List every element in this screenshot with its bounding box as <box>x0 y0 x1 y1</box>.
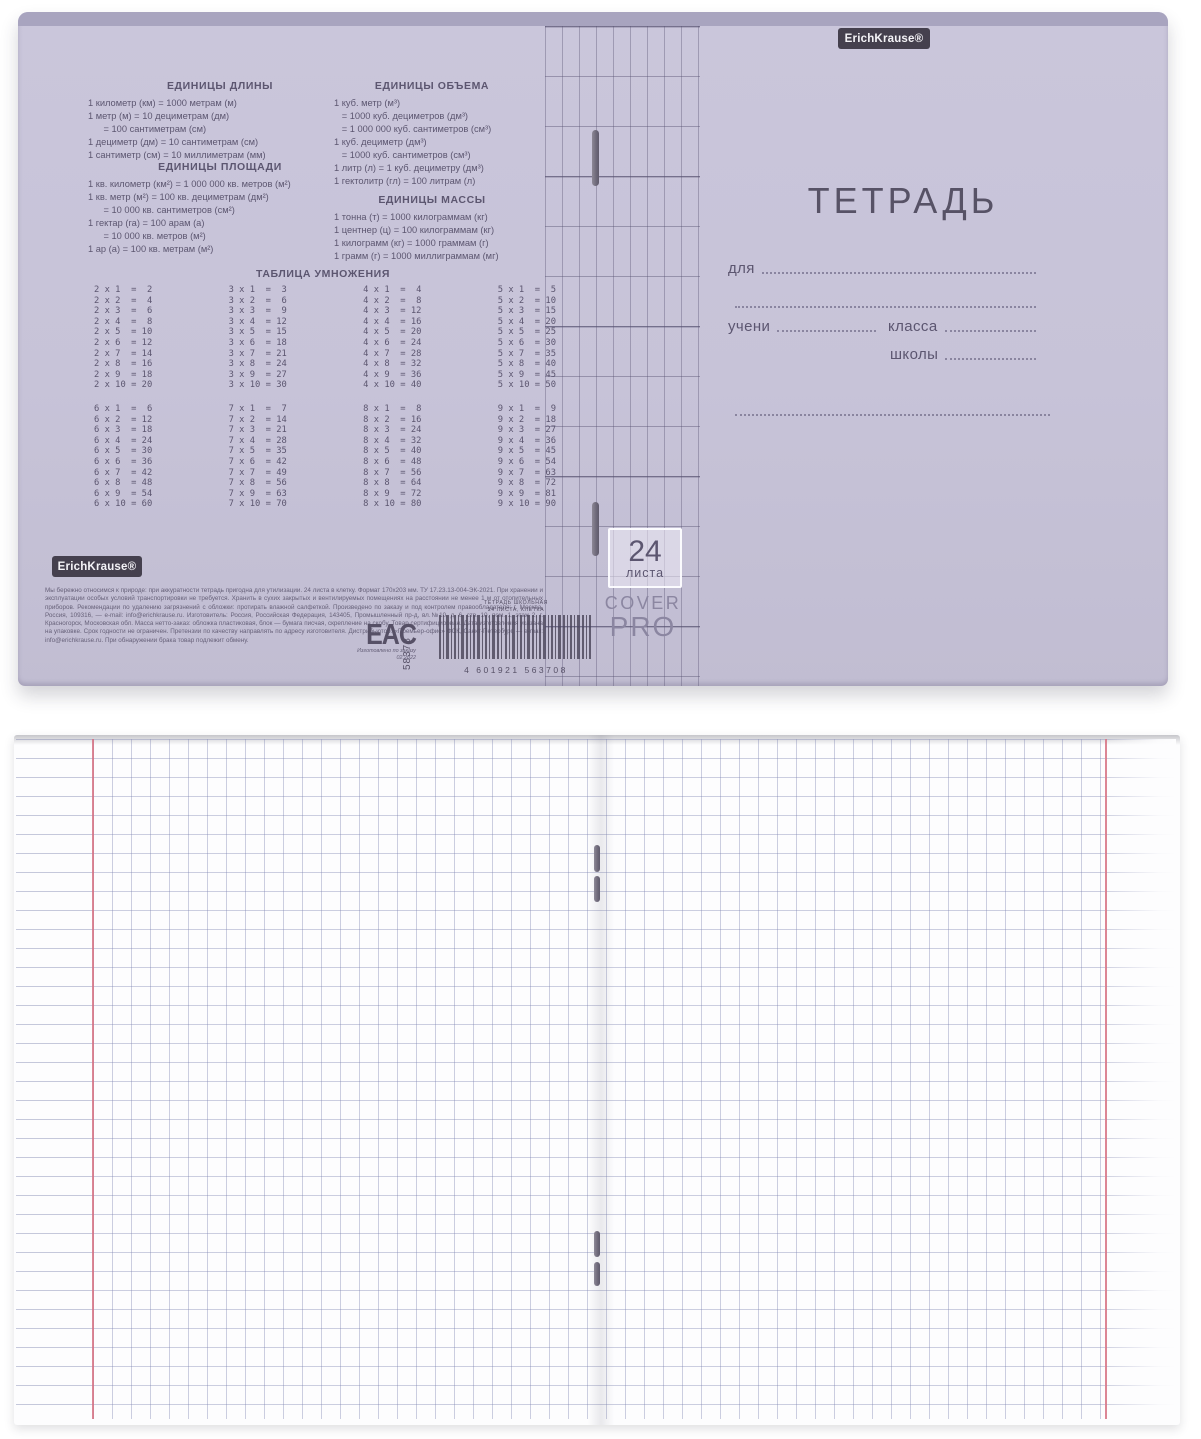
multiplication-col-7: 7 х 1 = 7 7 х 2 = 14 7 х 3 = 21 7 х 4 = … <box>229 404 287 510</box>
class-label: класса <box>888 318 938 335</box>
front-cover-title: ТЕТРАДЬ <box>718 180 1088 222</box>
multiplication-table-row-2: 6 х 1 = 6 6 х 2 = 12 6 х 3 = 18 6 х 4 = … <box>94 404 556 510</box>
staple-icon <box>594 1231 600 1257</box>
extra-fill-row <box>728 402 1052 419</box>
units-length-lines: 1 километр (км) = 1000 метрам (м) 1 метр… <box>88 97 352 162</box>
units-mass-table: ЕДИНИЦЫ МАССЫ 1 тонна (т) = 1000 килогра… <box>334 194 530 263</box>
units-volume-lines: 1 куб. метр (м³) = 1000 куб. дециметров … <box>334 97 530 188</box>
multiplication-col-8: 8 х 1 = 8 8 х 2 = 16 8 х 3 = 24 8 х 4 = … <box>363 404 421 510</box>
units-length-table: ЕДИНИЦЫ ДЛИНЫ 1 километр (км) = 1000 мет… <box>88 80 352 162</box>
units-area-lines: 1 кв. километр (км²) = 1 000 000 кв. мет… <box>88 178 352 256</box>
margin-line-left <box>92 739 94 1419</box>
brand-logo: ErichKrause® <box>838 28 930 49</box>
units-mass-title: ЕДИНИЦЫ МАССЫ <box>334 194 530 206</box>
units-volume-table: ЕДИНИЦЫ ОБЪЕМА 1 куб. метр (м³) = 1000 к… <box>334 80 530 188</box>
staple-icon <box>594 845 600 872</box>
units-mass-lines: 1 тонна (т) = 1000 килограммам (кг) 1 це… <box>334 211 530 263</box>
school-label: школы <box>890 346 938 363</box>
center-spine-shade <box>588 735 614 1425</box>
brand-logo: ErichKrause® <box>52 556 142 577</box>
cover-pro-line-2: PRO <box>593 613 693 640</box>
units-length-title: ЕДИНИЦЫ ДЛИНЫ <box>88 80 352 92</box>
notebook-cover: ЕДИНИЦЫ ДЛИНЫ 1 километр (км) = 1000 мет… <box>18 12 1168 686</box>
fill-in-line <box>945 346 1036 360</box>
fill-in-line <box>762 260 1036 274</box>
fill-in-line <box>735 402 1050 416</box>
owner-for-row: для <box>728 260 1038 277</box>
multiplication-table-title: ТАБЛИЦА УМНОЖЕНИЯ <box>88 268 558 280</box>
fill-in-line <box>945 318 1036 332</box>
fill-in-line <box>777 318 876 332</box>
multiplication-col-6: 6 х 1 = 6 6 х 2 = 12 6 х 3 = 18 6 х 4 = … <box>94 404 152 510</box>
student-class-row: учени класса <box>728 318 1038 335</box>
cover-pro-label: COVER PRO <box>593 594 693 640</box>
page-edge-left <box>16 739 93 1419</box>
student-half: учени <box>728 318 878 335</box>
student-label: учени <box>728 318 770 335</box>
sheets-number: 24 <box>628 537 661 567</box>
page-edge-right <box>1106 739 1176 1419</box>
owner-name-row <box>728 294 1038 311</box>
notebook-spread <box>14 735 1180 1425</box>
multiplication-col-3: 3 х 1 = 3 3 х 2 = 6 3 х 3 = 9 3 х 4 = 12… <box>229 285 287 391</box>
multiplication-col-2: 2 х 1 = 2 2 х 2 = 4 2 х 3 = 6 2 х 4 = 8 … <box>94 285 152 391</box>
class-half: класса <box>888 318 1038 335</box>
staple-icon <box>594 876 600 902</box>
multiplication-col-4: 4 х 1 = 4 4 х 2 = 8 4 х 3 = 12 4 х 4 = 1… <box>363 285 421 391</box>
sheets-count-badge: 24 листа <box>608 528 682 588</box>
units-area-title: ЕДИНИЦЫ ПЛОЩАДИ <box>88 161 352 173</box>
cover-spine-edge <box>18 12 1168 26</box>
multiplication-table-row-1: 2 х 1 = 2 2 х 2 = 4 2 х 3 = 6 2 х 4 = 8 … <box>94 285 556 391</box>
school-row: школы <box>728 346 1038 363</box>
fill-in-line <box>735 294 1036 308</box>
product-photo: ЕДИНИЦЫ ДЛИНЫ 1 километр (км) = 1000 мет… <box>0 0 1201 1439</box>
made-note: Изготовлено по заказу 02.2022 <box>354 648 416 662</box>
staple-icon <box>592 502 599 556</box>
units-volume-title: ЕДИНИЦЫ ОБЪЕМА <box>334 80 530 92</box>
staple-icon <box>592 130 599 186</box>
sheets-word: листа <box>626 567 664 580</box>
staple-icon <box>594 1262 600 1286</box>
units-area-table: ЕДИНИЦЫ ПЛОЩАДИ 1 кв. километр (км²) = 1… <box>88 161 352 256</box>
for-label: для <box>728 260 755 277</box>
margin-line-right <box>1105 739 1107 1419</box>
